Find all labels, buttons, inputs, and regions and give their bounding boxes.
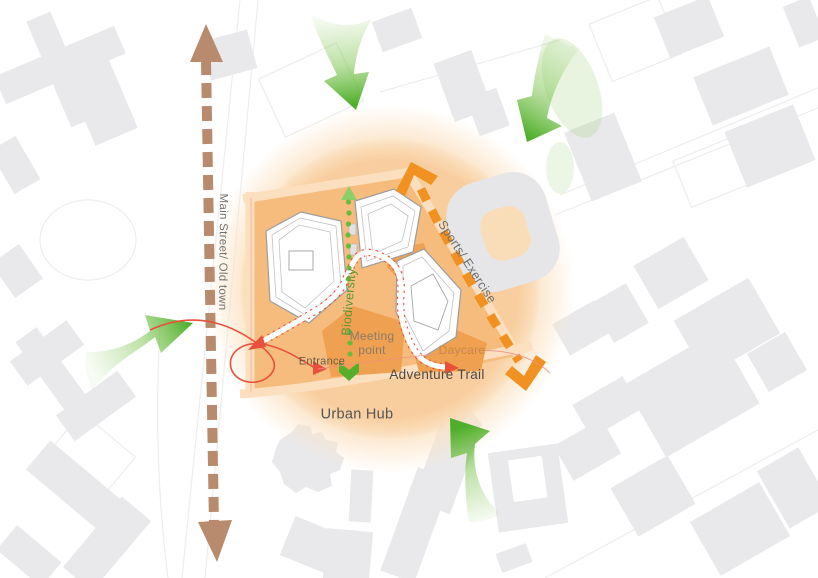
- pedestrian-flow-arrow-left-icon: [85, 315, 193, 389]
- meeting-point-label: Meeting point: [350, 330, 395, 358]
- adventure-trail-label: Adventure Trail: [389, 367, 484, 383]
- meeting-point-label-line1: Meeting: [350, 330, 395, 344]
- entrance-label: Entrance: [299, 356, 345, 369]
- courtyard-building-hole: [508, 456, 548, 502]
- meeting-point-label-line2: point: [350, 344, 395, 358]
- urban-hub-label: Urban Hub: [321, 407, 394, 424]
- main-street-label: Main Street/ Old town: [215, 194, 229, 311]
- site-plan-diagram: Main Street/ Old town Sports/ Exercise B…: [0, 0, 818, 578]
- map-canvas: [0, 0, 818, 578]
- pedestrian-flow-arrow-top-icon: [310, 14, 372, 110]
- daycare-label: Daycare: [439, 344, 486, 358]
